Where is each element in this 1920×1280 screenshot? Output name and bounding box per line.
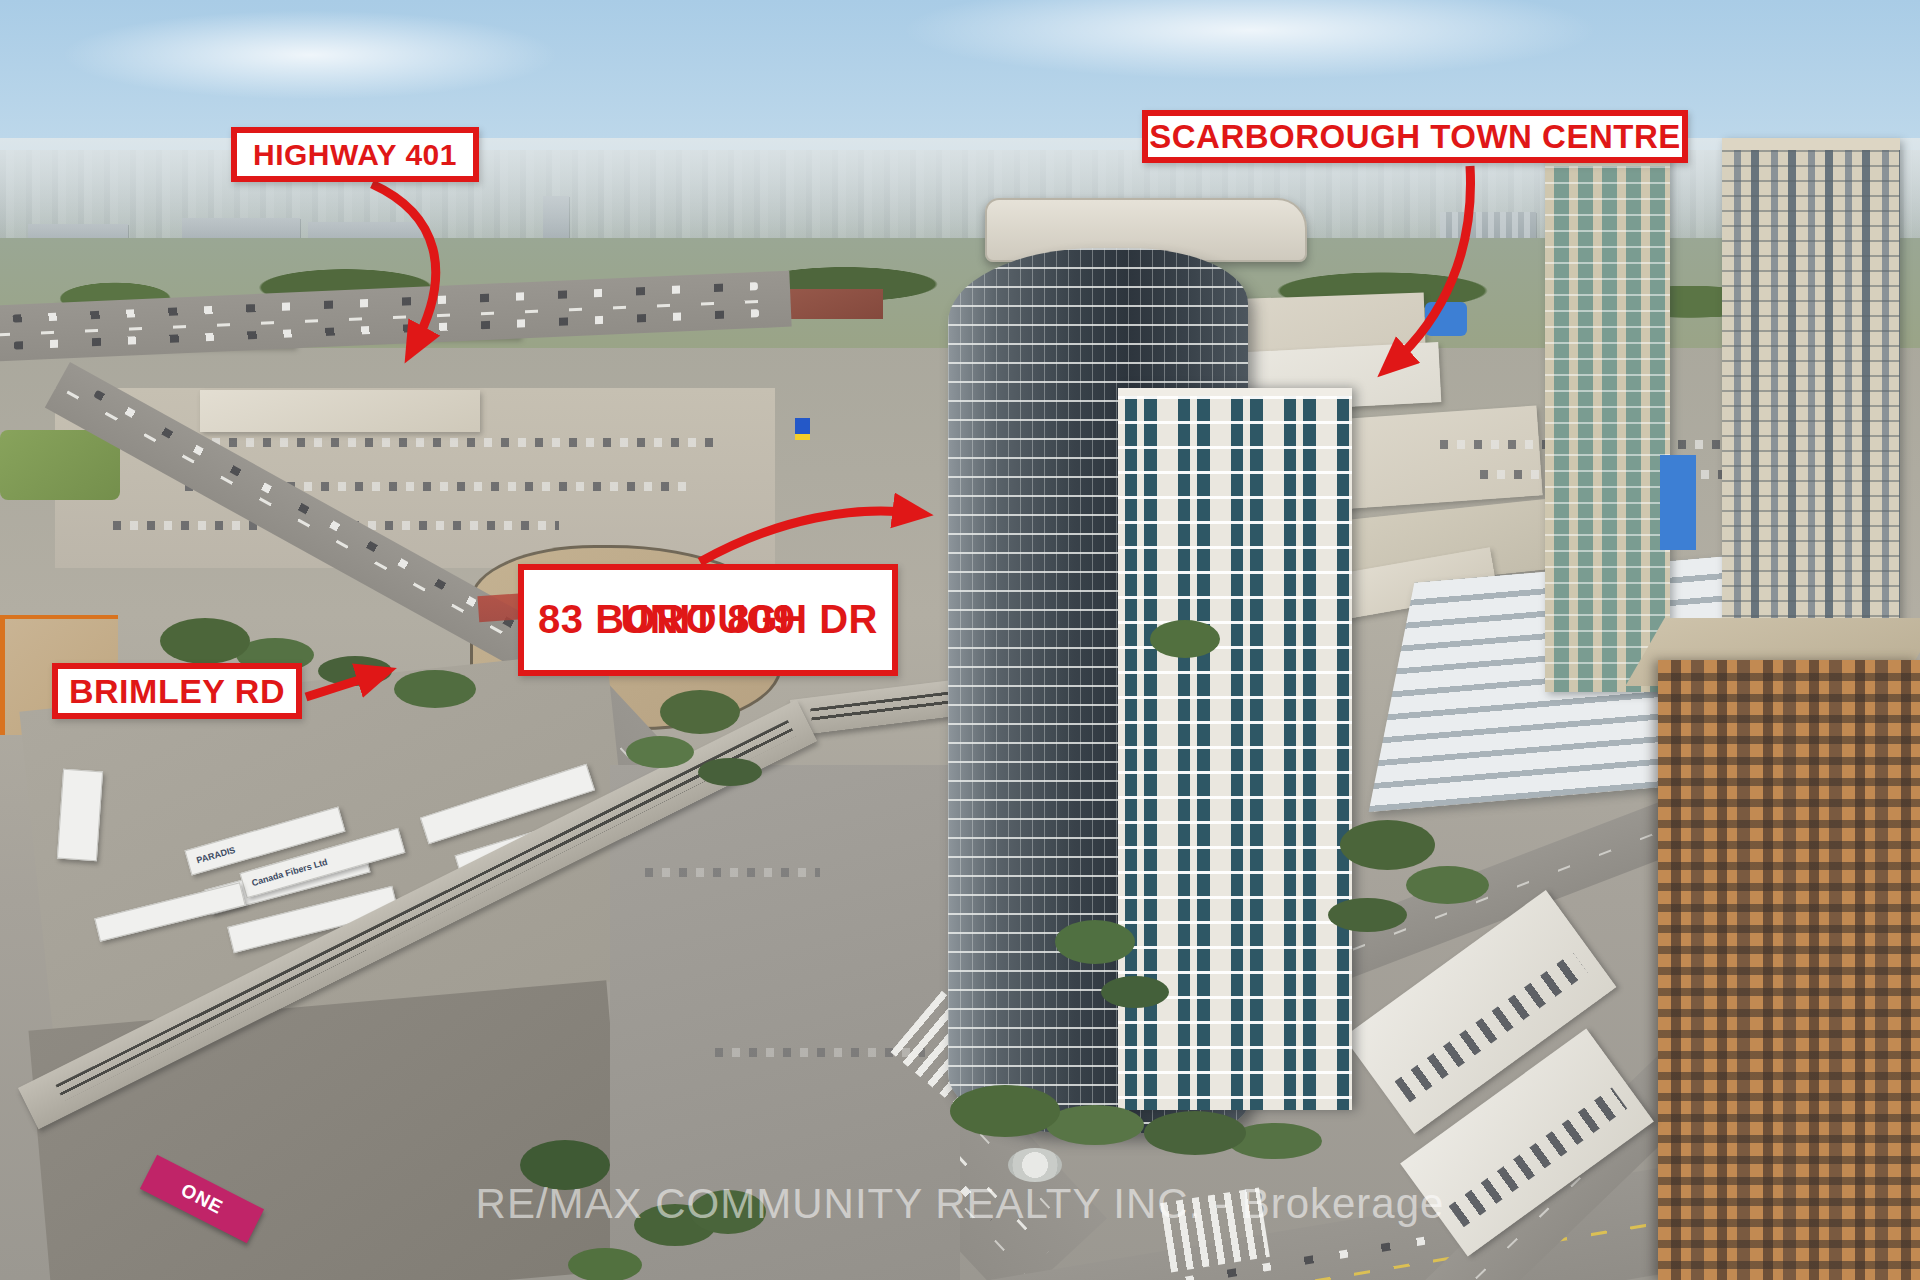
callout-scarborough-town-centre-text: SCARBOROUGH TOWN CENTRE [1149, 118, 1681, 156]
callout-scarborough-town-centre: SCARBOROUGH TOWN CENTRE [1142, 110, 1688, 163]
arrow-highway401 [372, 184, 436, 346]
property-address-line2: UNIT 809 [620, 594, 795, 645]
callout-highway-401: HIGHWAY 401 [231, 127, 479, 182]
arrow-property [700, 511, 914, 562]
callout-highway-401-text: HIGHWAY 401 [253, 138, 457, 172]
arrow-town-centre [1392, 166, 1471, 364]
brokerage-watermark: RE/MAX COMMUNITY REALTY INC. - Brokerage [0, 1180, 1920, 1228]
callout-brimley-rd: BRIMLEY RD [52, 663, 302, 719]
arrow-brimley [306, 674, 378, 697]
aerial-photo-scene: PARADIS Canada Fibers Ltd ONE [0, 0, 1920, 1280]
annotation-arrows [0, 0, 1920, 1280]
callout-property-address: 83 BOROUGH DR UNIT 809 [518, 564, 898, 676]
callout-brimley-rd-text: BRIMLEY RD [69, 672, 285, 711]
